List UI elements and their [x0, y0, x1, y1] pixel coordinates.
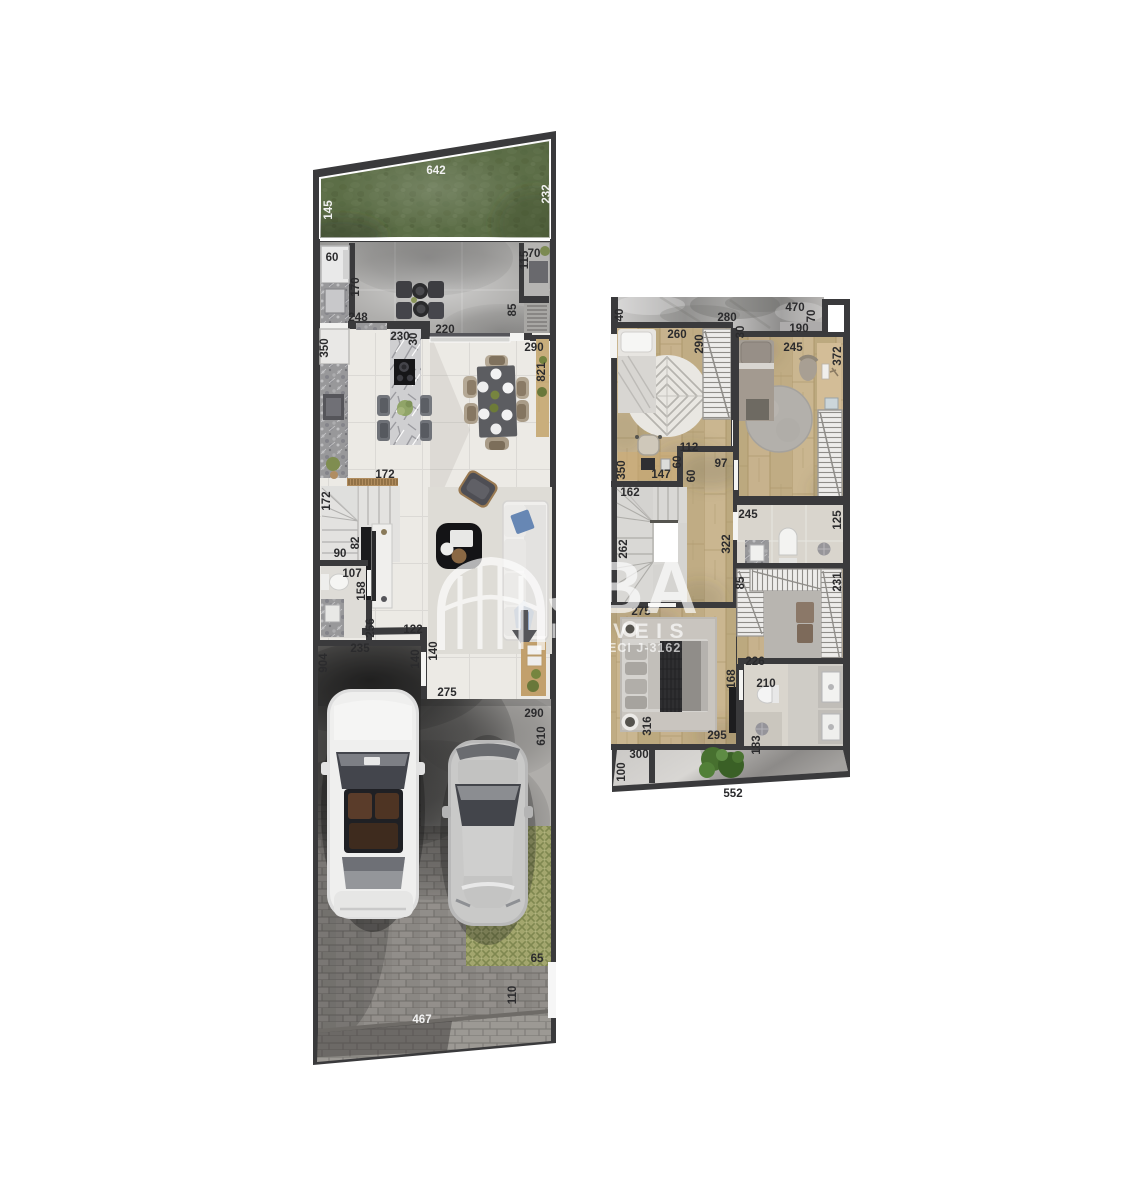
svg-text:235: 235 [350, 643, 370, 655]
svg-text:280: 280 [717, 312, 736, 324]
svg-text:350: 350 [319, 338, 331, 357]
svg-text:70: 70 [528, 248, 541, 260]
svg-text:65: 65 [531, 953, 544, 965]
svg-text:610: 610 [536, 726, 548, 745]
svg-text:60: 60 [326, 252, 339, 264]
svg-text:CRECI J-3162: CRECI J-3162 [588, 641, 681, 655]
svg-text:220: 220 [435, 324, 454, 336]
svg-text:300: 300 [629, 749, 648, 761]
svg-text:158: 158 [356, 581, 368, 601]
svg-text:467: 467 [412, 1014, 431, 1026]
svg-text:107: 107 [342, 568, 361, 580]
svg-text:260: 260 [667, 329, 686, 341]
svg-text:372: 372 [832, 346, 844, 365]
svg-text:232: 232 [541, 184, 553, 203]
svg-text:642: 642 [426, 165, 445, 177]
svg-text:275: 275 [437, 687, 457, 699]
svg-text:60: 60 [672, 456, 684, 469]
svg-text:210: 210 [756, 678, 775, 690]
svg-text:350: 350 [616, 460, 628, 479]
svg-text:470: 470 [785, 302, 804, 314]
svg-text:145: 145 [323, 200, 335, 220]
svg-text:90: 90 [334, 548, 347, 560]
svg-text:904: 904 [318, 653, 330, 673]
svg-text:30: 30 [408, 333, 420, 346]
svg-text:70: 70 [806, 310, 818, 323]
svg-text:552: 552 [723, 788, 742, 800]
svg-text:290: 290 [694, 334, 706, 353]
svg-text:140: 140 [410, 649, 422, 668]
svg-text:245: 245 [738, 509, 758, 521]
svg-text:30: 30 [735, 326, 747, 339]
svg-text:231: 231 [832, 572, 844, 592]
svg-text:316: 316 [642, 716, 654, 735]
svg-text:110: 110 [507, 986, 519, 1005]
svg-text:100: 100 [616, 762, 628, 781]
svg-text:85: 85 [507, 303, 519, 316]
svg-text:256: 256 [365, 618, 377, 637]
svg-text:170: 170 [350, 277, 362, 296]
svg-text:125: 125 [832, 510, 844, 530]
svg-text:85: 85 [735, 576, 747, 589]
svg-text:IMÓVEIS: IMÓVEIS [551, 619, 691, 643]
svg-text:82: 82 [350, 537, 362, 550]
svg-text:168: 168 [726, 669, 738, 689]
svg-text:821: 821 [536, 362, 548, 382]
svg-text:245: 245 [783, 342, 803, 354]
svg-text:40: 40 [614, 309, 626, 322]
svg-text:226: 226 [745, 656, 764, 668]
svg-text:122: 122 [403, 624, 422, 636]
svg-text:JBA: JBA [548, 546, 699, 629]
svg-text:97: 97 [715, 458, 728, 470]
svg-text:290: 290 [524, 342, 543, 354]
svg-text:172: 172 [321, 491, 333, 510]
svg-text:290: 290 [524, 708, 543, 720]
svg-text:295: 295 [707, 730, 727, 742]
svg-text:183: 183 [751, 735, 763, 754]
svg-text:248: 248 [348, 312, 368, 324]
svg-text:162: 162 [620, 487, 639, 499]
svg-text:230: 230 [390, 331, 409, 343]
svg-text:322: 322 [721, 534, 733, 553]
svg-text:112: 112 [680, 442, 699, 454]
svg-text:172: 172 [375, 469, 394, 481]
svg-text:147: 147 [651, 469, 670, 481]
svg-text:190: 190 [789, 323, 808, 335]
svg-text:60: 60 [686, 470, 698, 483]
